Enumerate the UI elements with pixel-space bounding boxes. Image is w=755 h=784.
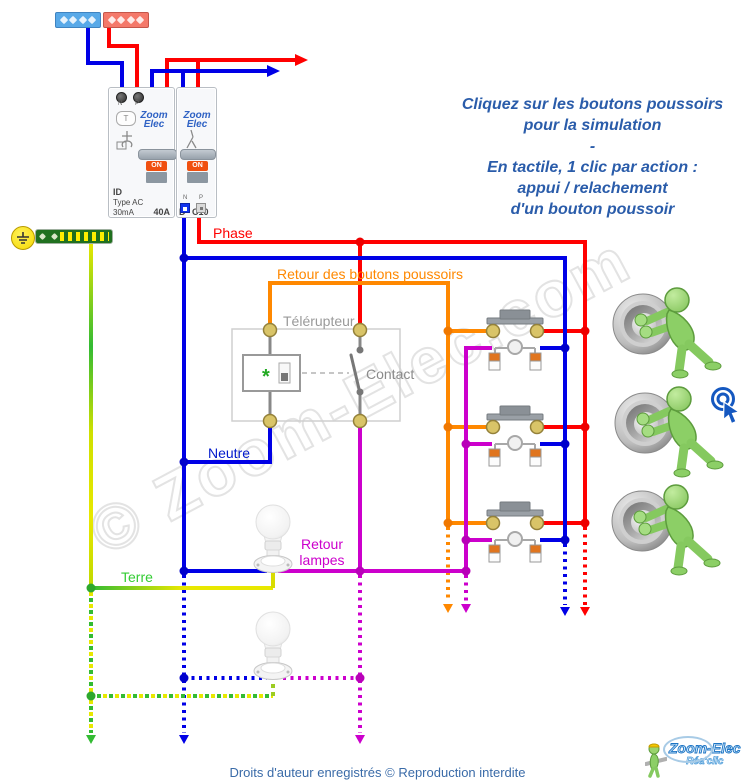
module-type-label: Type AC [113, 198, 143, 207]
terminal-slot [108, 16, 116, 24]
neutre-out-arrow [267, 65, 280, 77]
push-button-sim-3[interactable] [612, 485, 720, 575]
wiring-diagram-page: © Zoom-Elec.com [0, 0, 755, 784]
terminal-slot [136, 16, 144, 24]
coil-mark: * [262, 366, 270, 388]
retour-lampes-label: Retour lampes [292, 536, 352, 568]
on-indicator[interactable]: ON [187, 161, 208, 171]
retour-lampes-down-arrow [355, 735, 365, 744]
phase-out-arrow [295, 54, 308, 66]
lamp-2 [254, 612, 292, 680]
push-button-schematic-2[interactable] [487, 406, 544, 466]
junction-dots [87, 238, 590, 701]
copyright-notice: Droits d'auteur enregistrés © Reproducti… [0, 765, 755, 780]
phase-output-terminal [196, 203, 206, 213]
push-button-schematic-3[interactable] [487, 502, 544, 562]
push-button-sim-1[interactable] [613, 288, 721, 378]
contact-label: Contact [366, 366, 414, 382]
circuit-breaker-module: Zoom Elec ON D C10 N P [176, 87, 217, 218]
brand-logo: Zoom Elec [179, 111, 215, 129]
phase-top-feed-wire [167, 60, 295, 90]
on-indicator[interactable]: ON [146, 161, 167, 171]
terminal-slot [117, 16, 125, 24]
neutral-output-terminal [180, 203, 190, 213]
terminal-label-n: N [118, 101, 122, 107]
retour-boutons-label: Retour des boutons poussoirs [277, 266, 463, 282]
terminal-slot [127, 16, 135, 24]
zoom-elec-logo: Zoom-Elec Réa'clic [645, 740, 741, 778]
neutre-supply-wire [88, 28, 122, 90]
breaker-symbol-icon [183, 129, 201, 149]
lever-base [187, 172, 208, 183]
earth-busbar [35, 229, 113, 244]
neutre-down-arrow [179, 735, 189, 744]
terminal-slot [69, 16, 77, 24]
push-button-sim-2[interactable] [615, 387, 723, 477]
module-rating-label: 40A [153, 207, 170, 217]
module-id-label: ID [113, 187, 122, 197]
breaker-lever[interactable] [180, 149, 216, 160]
terminal-label-n: N [183, 195, 187, 201]
logo-name: Zoom-Elec [669, 740, 741, 756]
test-button[interactable]: T [116, 111, 136, 126]
brand-logo: Zoom Elec [136, 111, 172, 129]
terre-label: Terre [121, 569, 153, 585]
phase-supply-block [103, 12, 149, 28]
simulation-instructions: Cliquez sur les boutons poussoirs pour l… [420, 94, 755, 220]
breaker-lever[interactable] [138, 149, 177, 160]
neutral-supply-block [55, 12, 101, 28]
terminal-label-p: P [135, 101, 139, 107]
retour-boutons-down-arrow [443, 604, 453, 613]
terminal-label-p: P [199, 195, 203, 201]
earth-symbol-icon [11, 226, 35, 250]
phase-down-arrow [580, 607, 590, 616]
module-sensitivity-label: 30mA [113, 208, 134, 217]
click-cursor-icon [713, 389, 740, 424]
telerupteur-contact [351, 347, 364, 396]
differential-symbol-icon [114, 129, 140, 151]
differential-breaker-module: N P T Zoom Elec ON ID Type AC 30mA 40A [108, 87, 175, 218]
terminal-slot [88, 16, 96, 24]
neutre-label: Neutre [208, 445, 250, 461]
telerupteur-label: Télérupteur [283, 313, 355, 329]
phase-label: Phase [213, 225, 253, 241]
retour-lampes-down-arrow [461, 604, 471, 613]
neutre-down-arrow [560, 607, 570, 616]
terminal-slot [60, 16, 68, 24]
terminal-slot [79, 16, 87, 24]
push-button-schematic-1[interactable] [487, 310, 544, 370]
telerupteur-coil [243, 355, 300, 391]
lamp-1 [254, 505, 292, 573]
terre-down-arrow [86, 735, 96, 744]
lever-base [146, 172, 167, 183]
